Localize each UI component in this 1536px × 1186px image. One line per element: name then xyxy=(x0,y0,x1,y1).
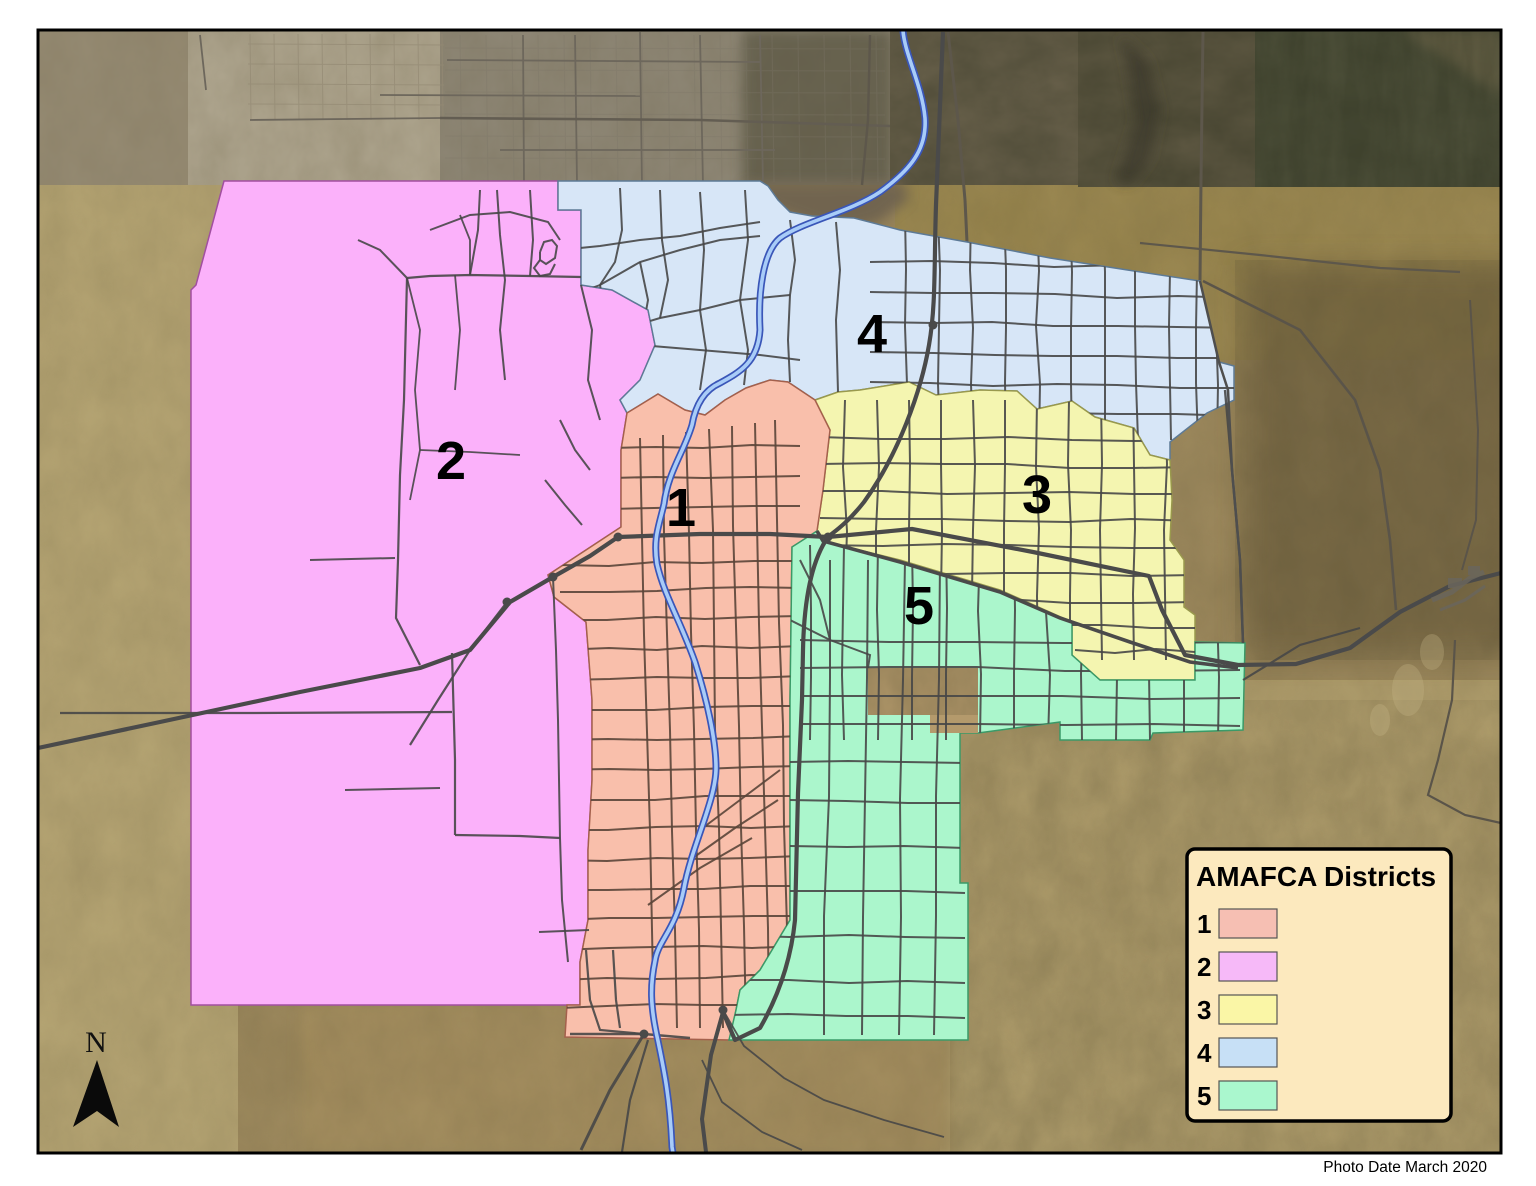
svg-text:N: N xyxy=(85,1026,107,1059)
svg-text:3: 3 xyxy=(1022,465,1052,525)
svg-text:3: 3 xyxy=(1197,995,1211,1025)
svg-text:1: 1 xyxy=(666,478,696,538)
svg-text:5: 5 xyxy=(1197,1081,1211,1111)
svg-text:AMAFCA Districts: AMAFCA Districts xyxy=(1196,861,1436,892)
svg-text:Photo Date March 2020: Photo Date March 2020 xyxy=(1323,1159,1487,1176)
svg-text:4: 4 xyxy=(857,304,887,364)
svg-text:4: 4 xyxy=(1197,1038,1212,1068)
svg-text:2: 2 xyxy=(1197,952,1211,982)
svg-text:1: 1 xyxy=(1197,909,1211,939)
svg-text:2: 2 xyxy=(436,431,466,491)
svg-text:5: 5 xyxy=(904,576,934,636)
